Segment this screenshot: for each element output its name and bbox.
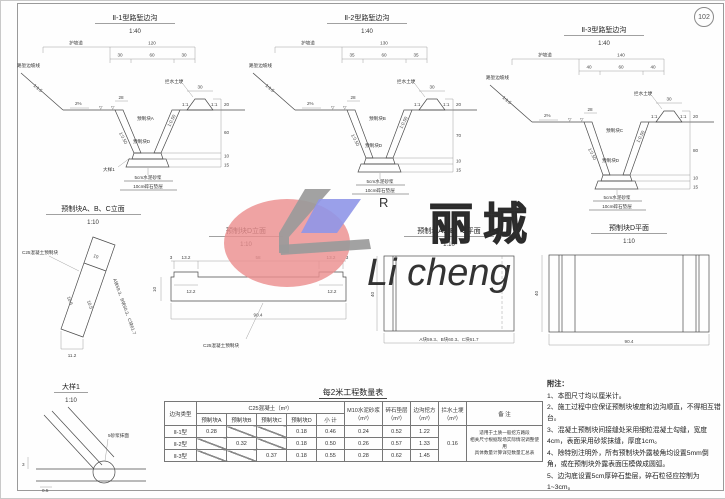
cell-excavation: 1.45	[411, 450, 439, 462]
xs3-w2: 60	[618, 65, 624, 70]
cell-b-empty	[227, 426, 257, 438]
svg-text:▽: ▽	[99, 105, 103, 110]
xs1-total: 120	[148, 41, 156, 46]
xs1-h-cushion: 15	[224, 163, 230, 168]
xs3-h-cushion: 15	[693, 185, 699, 190]
cell-mound: 0.16	[439, 426, 467, 462]
xs3-mound-slope-right: 1:1	[680, 114, 687, 119]
cell-c-empty	[257, 426, 287, 438]
cross-section-1: Ⅱ-1型路堑边沟 1:40	[15, 7, 247, 203]
xs2-berm: 护坡道	[301, 40, 315, 47]
xs1-block-wall-label: 预制块A	[137, 115, 155, 122]
xs3-note2: 10cm碎石垫层	[602, 203, 632, 210]
drawing-sheet: 102 Ⅱ-1型路堑边沟 1:40	[0, 0, 725, 499]
xs2-wall-top: 28	[350, 95, 356, 100]
block-abc-plan: 预制块A、B、C平面 1:10 40 A块59.3、B块60.3、C块61.7	[369, 221, 529, 361]
xs1-note2: 10cm碎石垫层	[133, 183, 163, 190]
abc-elev-w-top: 10	[93, 253, 100, 260]
col-gravel: 碎石垫层（m³）	[383, 402, 411, 426]
abc-elev-material: C25混凝土预制块	[22, 249, 58, 256]
xs1-slope-line-label: 路堑边坡线	[17, 62, 40, 69]
note-item: 1、本图尺寸均以厘米计。	[547, 392, 721, 403]
cell-a-empty	[197, 438, 227, 450]
d-elev-height: 10	[152, 286, 157, 292]
d-elev-material: C25混凝土预制块	[203, 342, 239, 349]
xs2-h-slab: 10	[456, 159, 462, 164]
xs1-h-mound: 20	[224, 102, 230, 107]
notes-section: 附注： 1、本图尺寸均以厘米计。 2、施工过程中应保证预制块坡度和边沟顺直，不得…	[547, 378, 721, 494]
cell-gravel: 0.62	[383, 450, 411, 462]
xs1-title: Ⅱ-1型路堑边沟	[113, 13, 158, 22]
cell-c: 0.37	[257, 450, 287, 462]
xs3-w3: 40	[650, 65, 656, 70]
xs2-mound-label: 拦水土埂	[397, 78, 416, 85]
xs1-scale: 1:40	[129, 29, 141, 35]
detail1-dim-v: 3	[22, 462, 25, 467]
abc-plan-drawing	[377, 256, 514, 343]
d-elev-title: 预制块D立面	[226, 226, 266, 235]
xs3-grade: 2%	[544, 113, 551, 118]
d-plan-scale: 1:10	[623, 239, 635, 245]
d-elev-recess-l: 12.2	[187, 289, 196, 294]
quantity-table-section: 每2米工程数量表 边沟类型 C25混凝土（m³） M10水泥砂浆（m³） 碎石垫…	[164, 387, 542, 462]
cell-d: 0.18	[287, 450, 317, 462]
note-item: 3、混凝土预制块间接缝处采用细粒混凝土勾缝，宽度4cm，表面采用砂浆抹缝，厚度1…	[547, 426, 721, 448]
svg-text:▽: ▽	[111, 105, 115, 110]
svg-text:▽: ▽	[331, 105, 335, 110]
cell-d: 0.18	[287, 438, 317, 450]
cell-excavation: 1.22	[411, 426, 439, 438]
detail-1: 大样1 1:10 5砂浆抹面 3 0.5	[16, 377, 156, 495]
table-row: Ⅱ-1型 0.28 0.18 0.46 0.24 0.52 1.22 0.16 …	[165, 426, 543, 438]
xs3-title: Ⅱ-3型路堑边沟	[582, 25, 627, 34]
note-item: 5、边沟底设置5cm厚碎石垫层，碎石粒径应控制为1~3cm。	[547, 472, 721, 494]
cell-excavation: 1.33	[411, 438, 439, 450]
note-item: 4、除特别注明外，所有预制块外露棱角均设置5mm倒角，或在预制块外露表面压模做成…	[547, 449, 721, 471]
xs3-mound-w: 30	[666, 97, 672, 102]
xs1-note1: 5cm水泥砂浆	[134, 174, 161, 181]
xs3-block-wall-label: 预制块C	[606, 127, 624, 134]
xs3-scale: 1:40	[598, 41, 610, 47]
xs3-wall-slope-right: 1:0.50	[635, 129, 645, 143]
xs1-grade: 2%	[75, 101, 82, 106]
xs2-h-cushion: 15	[456, 168, 462, 173]
xs3-cut-slope: 1:1.5	[501, 95, 512, 106]
d-plan-total: 90.4	[625, 339, 634, 344]
cell-b: 0.32	[227, 438, 257, 450]
cell-type: Ⅱ-1型	[165, 426, 197, 438]
xs3-w1: 40	[586, 65, 592, 70]
abc-elev-seg1: 10.5	[66, 296, 74, 307]
abc-elev-drawing	[49, 237, 115, 349]
xs1-wall-top: 28	[118, 95, 124, 100]
abc-plan-scale: 1:10	[443, 242, 455, 248]
xs2-w2: 60	[381, 53, 387, 58]
cell-d: 0.18	[287, 426, 317, 438]
cell-gravel: 0.57	[383, 438, 411, 450]
d-elev-scale: 1:10	[240, 242, 252, 248]
col-block-d: 预制块D	[287, 414, 317, 426]
cell-type: Ⅱ-3型	[165, 450, 197, 462]
d-elev-recess-r: 12.2	[328, 289, 337, 294]
abc-elev-slant-note: A块59.3、B块60.3、C块61.7	[111, 277, 138, 335]
xs3-mound-label: 拦水土埂	[634, 90, 653, 97]
xs2-total: 130	[380, 41, 388, 46]
xs2-block-bottom-label: 预制块D	[365, 142, 383, 149]
col-type: 边沟类型	[165, 402, 197, 426]
xs2-drawing	[253, 47, 477, 194]
d-elev-edge-r: 3	[346, 255, 349, 260]
xs3-total: 140	[617, 53, 625, 58]
cell-subtotal: 0.50	[317, 438, 345, 450]
xs2-w3: 35	[413, 53, 419, 58]
col-mortar: M10水泥砂浆（m³）	[345, 402, 383, 426]
xs3-h-depth: 80	[693, 148, 699, 153]
detail1-title: 大样1	[62, 382, 80, 391]
cell-c-empty	[257, 438, 287, 450]
xs3-h-slab: 10	[693, 176, 699, 181]
block-abc-elevation: 预制块A、B、C立面 1:10 C25混凝土预制块 10 10.5 10.5 A…	[21, 199, 171, 377]
xs1-drawing	[21, 47, 245, 190]
col-mound: 拦水土埂（m³）	[439, 402, 467, 426]
detail1-drawing	[28, 407, 146, 487]
cross-section-2: Ⅱ-2型路堑边沟 1:40	[247, 7, 479, 203]
xs3-drawing	[490, 59, 714, 210]
xs2-mound-slope-left: 1:1	[414, 102, 421, 107]
xs3-slope-line-label: 路堑边坡线	[486, 74, 509, 81]
cell-remark: 适用于土质一般挖方路段 相关尺寸根据现场实际情况调整使用 具体数量计算详见数量汇…	[467, 426, 543, 462]
xs2-grade: 2%	[307, 101, 314, 106]
abc-plan-height: 40	[370, 291, 375, 297]
svg-text:▽: ▽	[343, 105, 347, 110]
xs2-block-wall-label: 预制块B	[369, 115, 386, 122]
d-elev-lip-r: 13.2	[327, 255, 336, 260]
col-excavation: 边沟挖方（m³）	[411, 402, 439, 426]
xs3-h-mound: 20	[693, 114, 699, 119]
d-elev-mid: 58	[255, 255, 261, 260]
cell-gravel: 0.52	[383, 426, 411, 438]
xs3-block-bottom-label: 预制块D	[602, 157, 620, 164]
abc-elev-title: 预制块A、B、C立面	[61, 204, 124, 213]
xs2-slope-line-label: 路堑边坡线	[249, 62, 272, 69]
notes-title: 附注：	[547, 378, 721, 390]
xs1-h-depth: 60	[224, 130, 230, 135]
cell-subtotal: 0.55	[317, 450, 345, 462]
cell-mortar: 0.26	[345, 438, 383, 450]
note-item: 2、施工过程中应保证预制块坡度和边沟顺直，不得相互错台。	[547, 403, 721, 425]
xs2-mound-slope-right: 1:1	[443, 102, 450, 107]
d-elev-drawing	[161, 261, 346, 339]
xs1-w2: 60	[149, 53, 155, 58]
svg-text:▽: ▽	[568, 117, 572, 122]
xs3-berm: 护坡道	[538, 52, 552, 59]
cell-b-empty	[227, 450, 257, 462]
xs2-note2: 10cm碎石垫层	[365, 187, 395, 194]
d-elev-lip-l: 13.2	[182, 255, 191, 260]
d-plan-drawing	[542, 255, 709, 345]
block-d-plan: 预制块D平面 1:10 40 90.4	[529, 217, 724, 362]
quantity-table-title: 每2米工程数量表	[164, 387, 542, 398]
abc-elev-w-bottom: 11.2	[68, 353, 77, 358]
cell-a: 0.28	[197, 426, 227, 438]
xs3-wall-slope-left: 1:0.50	[587, 147, 597, 161]
d-plan-height: 40	[534, 290, 539, 296]
xs2-title: Ⅱ-2型路堑边沟	[345, 13, 390, 22]
xs2-mound-w: 30	[429, 85, 435, 90]
xs1-mound-slope-left: 1:1	[182, 102, 189, 107]
detail1-note: 5砂浆抹面	[108, 432, 129, 439]
abc-elev-scale: 1:10	[87, 220, 99, 226]
table-header-row-1: 边沟类型 C25混凝土（m³） M10水泥砂浆（m³） 碎石垫层（m³） 边沟挖…	[165, 402, 543, 414]
xs1-h-slab: 10	[224, 154, 230, 159]
col-remark: 备 注	[467, 402, 543, 426]
abc-plan-lengths: A块59.3、B块60.3、C块61.7	[419, 336, 479, 343]
cell-type: Ⅱ-2型	[165, 438, 197, 450]
svg-text:▽: ▽	[580, 117, 584, 122]
xs1-mound-slope-right: 1:1	[211, 102, 218, 107]
xs1-mound-label: 拦水土埂	[165, 78, 184, 85]
xs2-scale: 1:40	[361, 29, 373, 35]
d-plan-title: 预制块D平面	[609, 223, 649, 232]
col-block-b: 预制块B	[227, 414, 257, 426]
xs2-h-depth: 70	[456, 133, 462, 138]
xs2-note1: 5cm水泥砂浆	[366, 178, 393, 185]
xs1-detail-ref: 大样1	[103, 166, 115, 173]
xs2-w1: 35	[349, 53, 355, 58]
cell-subtotal: 0.46	[317, 426, 345, 438]
block-d-elevation: 预制块D立面 1:10 3 13.2 58 13.2 3 12.2 12.2 1…	[151, 219, 366, 359]
cell-mortar: 0.28	[345, 450, 383, 462]
quantity-table: 边沟类型 C25混凝土（m³） M10水泥砂浆（m³） 碎石垫层（m³） 边沟挖…	[164, 401, 543, 462]
col-block-c: 预制块C	[257, 414, 287, 426]
col-concrete: C25混凝土（m³）	[197, 402, 345, 414]
xs1-wall-slope-left: 1:0.50	[118, 131, 128, 145]
cell-a-empty	[197, 450, 227, 462]
xs1-berm: 护坡道	[69, 40, 83, 47]
xs2-wall-slope-left: 1:0.50	[350, 133, 360, 147]
xs1-block-bottom-label: 预制块D	[133, 138, 151, 145]
cross-section-3: Ⅱ-3型路堑边沟 1:40	[484, 19, 716, 215]
xs1-w3: 30	[181, 53, 187, 58]
d-elev-edge-l: 3	[170, 255, 173, 260]
detail1-dim-h: 0.5	[42, 488, 49, 493]
xs1-mound-w: 30	[197, 85, 203, 90]
xs2-h-mound: 20	[456, 102, 462, 107]
xs3-wall-top: 28	[587, 107, 593, 112]
xs2-cut-slope: 1:1.5	[264, 83, 275, 94]
xs3-mound-slope-left: 1:1	[651, 114, 658, 119]
xs3-note1: 5cm水泥砂浆	[603, 194, 630, 201]
cell-mortar: 0.24	[345, 426, 383, 438]
detail1-scale: 1:10	[65, 398, 77, 404]
xs1-w1: 30	[117, 53, 123, 58]
col-subtotal: 小 计	[317, 414, 345, 426]
xs1-cut-slope: 1:1.5	[32, 83, 43, 94]
abc-plan-title: 预制块A、B、C平面	[417, 226, 480, 235]
col-block-a: 预制块A	[197, 414, 227, 426]
d-elev-total: 90.4	[254, 313, 263, 318]
